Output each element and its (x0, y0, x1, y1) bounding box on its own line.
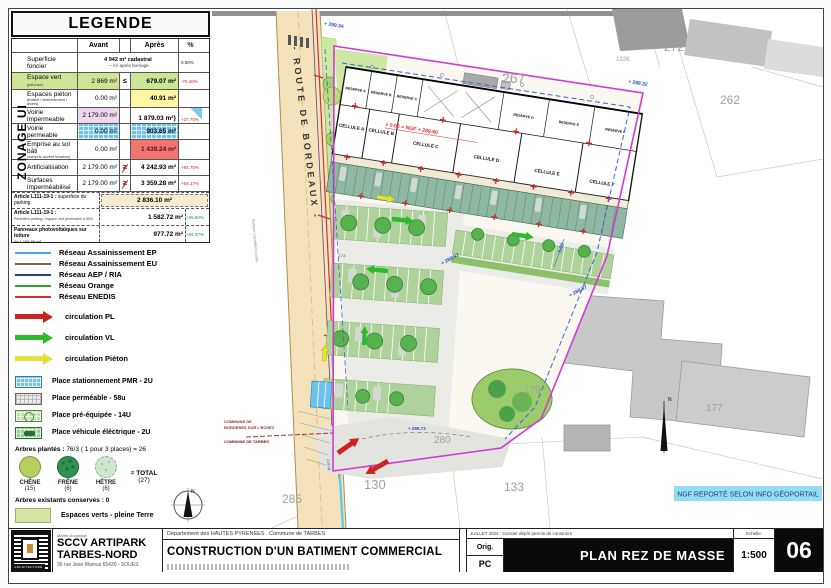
parcel-label: 285 (282, 492, 302, 506)
arbres-plantes: Arbres plantés : 76/3 ( 1 pour 3 places)… (15, 446, 206, 453)
project-title: CONSTRUCTION D'UN BATIMENT COMMERCIAL (163, 540, 459, 564)
table-row: Artificialisation 2 179.00 m² ≥ 4 242.93… (12, 160, 209, 176)
table-row: Voirie impermeable 2 179.00 m² 1 879.03 … (12, 108, 209, 124)
scale-value: 1:500 (733, 539, 774, 572)
legend-network-item: Réseau Orange (15, 280, 206, 291)
svg-text:N: N (668, 397, 672, 403)
owner-address: 36 rue Jean Mamus 65430 - SOUES (57, 562, 158, 568)
pre-equipee-swatch (15, 410, 42, 422)
sheet-title: PLAN REZ DE MASSE (504, 539, 733, 572)
legend-place-item: Place stationnement PMR - 2U (15, 373, 206, 390)
arrow-icon (15, 311, 59, 323)
parcel-label: 1326 (616, 57, 630, 63)
svg-text:N: N (191, 489, 195, 495)
permeable-swatch (15, 393, 42, 405)
svg-text:NGF REPORTÉ SELON INFO GÉOPORT: NGF REPORTÉ SELON INFO GÉOPORTAIL (677, 490, 819, 499)
parcel-label: 262 (720, 93, 740, 107)
title-block: ARCHITECTURE Maître d'ouvrage SCCV ARTIP… (9, 528, 823, 572)
stall-count: 174 (338, 253, 346, 259)
svg-text:BORDERES SUR L'ECHEZ: BORDERES SUR L'ECHEZ (224, 425, 275, 430)
network-line-swatch (15, 252, 51, 254)
article-row: Panneaux photovoltaïques sur toiturede 1… (12, 226, 209, 242)
owner-cell: Maître d'ouvrage SCCV ARTIPARK TARBES-NO… (53, 529, 163, 572)
legend-network-item: Réseau Assainissement EU (15, 258, 206, 269)
site-plan: RESERVE A RESERVE B RESERVE C RESERVE D … (212, 9, 823, 528)
legend-place-item: Place perméable - 58u (15, 390, 206, 407)
tree-type: HÊTRE(6) (87, 456, 125, 492)
legend-network-item: Réseau ENEDIS (15, 291, 206, 302)
tree (323, 87, 341, 105)
legend-network-item: Réseau Assainissement EP (15, 247, 206, 258)
sheet-number: 06 (775, 529, 823, 572)
article-row: Article L111-19-1 :Périmètre parking / e… (12, 209, 209, 226)
circulation-legend: circulation PL circulation VL circulatio… (15, 306, 206, 369)
table-row: Espace vert (pelouse) 2 869 m² ≤ 679.07 … (12, 73, 209, 90)
zonage-label: ZONAGE UI (15, 102, 29, 182)
legend-panel: LEGENDE ZONAGE UI Avant Après % Superfic… (9, 9, 213, 528)
table-row: Superficie foncier 4 942 m² cadastral --… (12, 53, 209, 73)
table-row: Espaces piéton(trottoir / cheminement / … (12, 90, 209, 108)
table-row: Voirie permeable 0.00 m² 903.65 m² (12, 124, 209, 140)
legend-title: LEGENDE (11, 11, 210, 37)
table-header-row: Avant Après % (12, 39, 209, 53)
architect-logo-icon: ARCHITECTURE (11, 530, 51, 572)
frene-tree-icon (57, 456, 79, 478)
drawing-sheet: LEGENDE ZONAGE UI Avant Après % Superfic… (8, 8, 824, 584)
table-row: Emprise au sol bâti(compris auvent livra… (12, 140, 209, 160)
network-line-swatch (15, 296, 51, 298)
parcel-label: 280 (434, 435, 451, 446)
microtext-note (167, 564, 351, 570)
legend-network-item: Réseau AEP / RIA (15, 269, 206, 280)
revision-strip (460, 529, 467, 572)
parcel-label: 267 (502, 70, 526, 86)
legend-circulation-item: circulation PL (15, 306, 206, 327)
orig-label: Orig. (467, 539, 503, 556)
project-cell: Département des HAUTES PYRENEES . Commun… (163, 529, 460, 572)
parcel-label: 133 (504, 480, 524, 494)
pmr-swatch (15, 376, 42, 388)
svg-text:COMMUNE DE: COMMUNE DE (224, 419, 252, 424)
legend-circulation-item: circulation Piéton (15, 348, 206, 369)
hetre-tree-icon (95, 456, 117, 478)
orig-pc-cell: Orig. PC (467, 539, 504, 572)
arrow-icon (15, 332, 59, 344)
places-legend: Place stationnement PMR - 2U Place permé… (15, 373, 206, 441)
col-pct: % (179, 39, 202, 52)
parcel-label: 179 (524, 385, 541, 396)
network-line-swatch (15, 285, 51, 287)
tree-type: FRÊNE(6) (49, 456, 87, 492)
architect-logo: ARCHITECTURE (9, 529, 53, 572)
arrow-icon (15, 353, 59, 365)
networks-legend: Réseau Assainissement EP Réseau Assainis… (15, 247, 206, 302)
network-line-swatch (15, 274, 51, 276)
drawing-sheet-page: LEGENDE ZONAGE UI Avant Après % Superfic… (0, 0, 831, 588)
legend-circulation-item: circulation VL (15, 327, 206, 348)
elevation-label: + 288.73 (408, 426, 426, 431)
tree-total: = TOTAL(27) (125, 470, 163, 492)
vehicule-electrique-swatch (15, 427, 42, 439)
parcel-label: 130 (364, 477, 386, 492)
legend-place-item: Place véhicule éléctrique - 2U (15, 424, 206, 441)
owner-name-line1: SCCV ARTIPARK (57, 538, 158, 550)
surface-table: ZONAGE UI Avant Après % Superficie fonci… (11, 38, 210, 243)
chene-tree-icon (19, 456, 41, 478)
site-plan-svg: RESERVE A RESERVE B RESERVE C RESERVE D … (212, 9, 823, 528)
department-commune: Département des HAUTES PYRENEES . Commun… (163, 529, 459, 540)
tree-type: CHÊNE(15) (11, 456, 49, 492)
owner-name-line2: TARBES-NORD (57, 550, 158, 562)
col-avant: Avant (78, 39, 120, 52)
network-line-swatch (15, 263, 51, 265)
pc-label: PC (467, 556, 503, 572)
espaces-verts-swatch (15, 508, 51, 523)
sheet-info-cell: JUILLET 2024 : Dossier dépôt permis de c… (467, 529, 775, 572)
compass-rose-icon: N (170, 486, 206, 522)
phase-date: JUILLET 2024 : Dossier dépôt permis de c… (467, 529, 733, 538)
table-row: Surfaces imperméabilisé 2 179.00 m² ≥ 3 … (12, 176, 209, 192)
pmr-stalls (310, 381, 332, 408)
legend-place-item: Place pré-équipée - 14U (15, 407, 206, 424)
parcel-label: 177 (706, 403, 723, 414)
article-row: Article L111-19-1 : superficie du parkin… (12, 192, 209, 209)
parcel-label: 272 (664, 40, 684, 54)
col-apres: Après (131, 39, 179, 52)
svg-text:COMMUNE DE TARBES: COMMUNE DE TARBES (224, 439, 269, 444)
scale-caption: Echelle: (733, 529, 774, 538)
ngf-note: NGF REPORTÉ SELON INFO GÉOPORTAIL (674, 486, 822, 501)
